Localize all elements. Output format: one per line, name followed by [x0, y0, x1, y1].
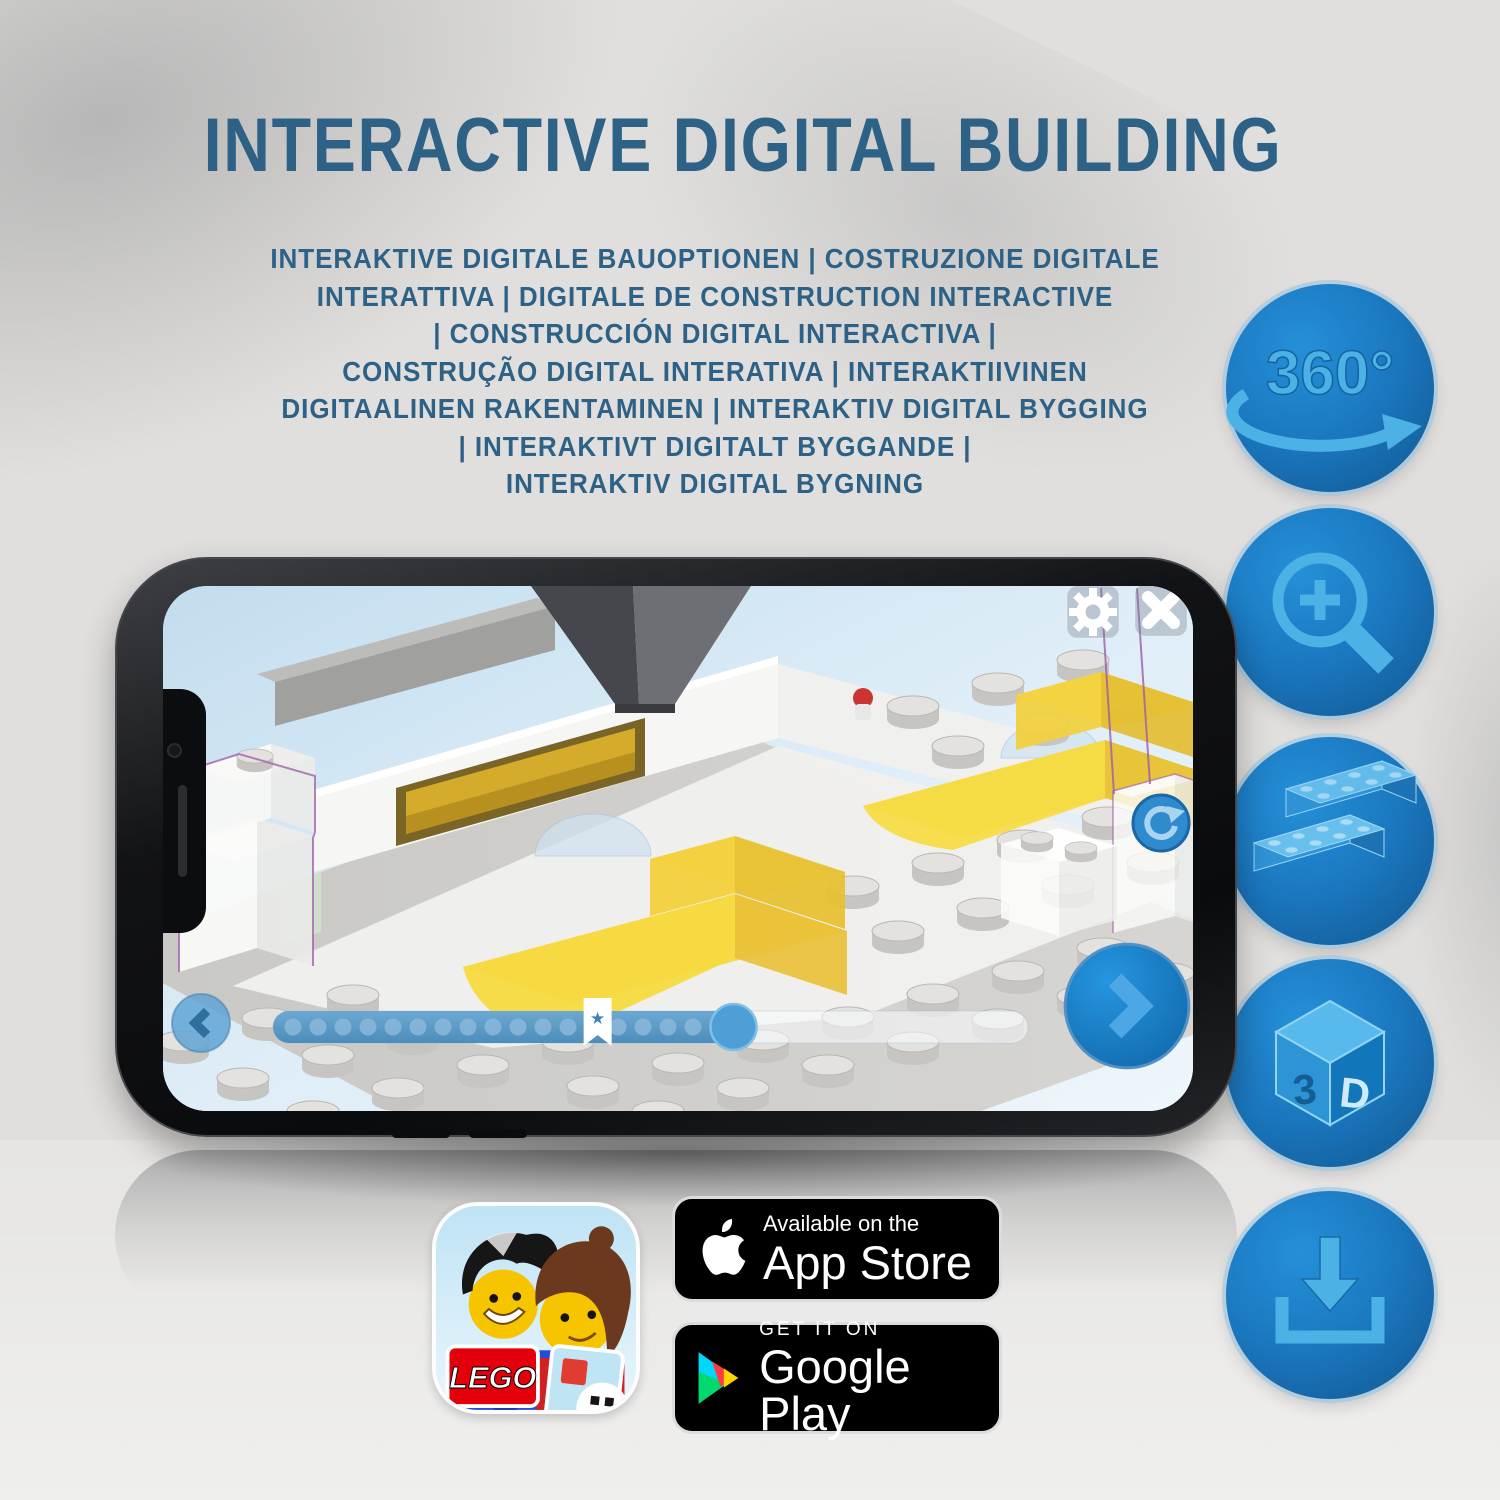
- next-step-button[interactable]: [1065, 944, 1189, 1068]
- progress-handle[interactable]: [711, 1004, 757, 1050]
- multilingual-subtitle: INTERAKTIVE DIGITALE BAUOPTIONEN | COSTR…: [36, 240, 1394, 503]
- cube-3-label: 3: [1291, 1065, 1319, 1114]
- google-play-icon: [695, 1346, 743, 1410]
- feature-zoom: [1226, 508, 1434, 716]
- phone-edge-button: [469, 1129, 527, 1138]
- instruction-card: [544, 1345, 634, 1410]
- page-title: INTERACTIVE DIGITAL BUILDING: [111, 102, 1374, 189]
- app-store-tagline: Available on the: [763, 1213, 972, 1235]
- app-store-name: App Store: [763, 1239, 972, 1286]
- phone-notch: [163, 689, 206, 933]
- phone-screen: ★: [163, 586, 1193, 1111]
- feature-3d-view: 3 D: [1226, 959, 1434, 1167]
- subtitle-line: CONSTRUÇÃO DIGITAL INTERATIVA | INTERAKT…: [36, 353, 1394, 391]
- feature-bricks: [1226, 737, 1434, 945]
- google-play-name: Google Play: [759, 1343, 979, 1437]
- google-play-tagline: GET IT ON: [759, 1320, 979, 1339]
- star-icon: ★: [590, 1009, 605, 1028]
- download-icon: [1226, 1191, 1434, 1399]
- feature-download: [1226, 1191, 1434, 1399]
- subtitle-line: INTERAKTIV DIGITAL BYGNING: [36, 465, 1394, 503]
- settings-button[interactable]: [1067, 586, 1119, 638]
- reset-rotation-button[interactable]: [1133, 795, 1189, 851]
- minifigure-hint: [853, 688, 873, 720]
- camera-icon: [169, 745, 180, 756]
- 360-rotation-icon: 360°: [1226, 284, 1434, 492]
- phone-edge-button: [392, 1129, 450, 1138]
- white-brick-box: [1001, 828, 1117, 936]
- lego-app-artwork: LEGO: [436, 1206, 636, 1410]
- 360-label: 360°: [1266, 339, 1394, 408]
- close-button[interactable]: [1135, 586, 1187, 636]
- lego-logo: LEGO: [448, 1346, 538, 1406]
- 3d-cube-icon: 3 D: [1226, 959, 1434, 1167]
- lego-logo-text: LEGO: [449, 1360, 536, 1395]
- back-button[interactable]: [172, 994, 230, 1052]
- google-play-badge[interactable]: GET IT ON Google Play: [672, 1322, 1002, 1434]
- subtitle-line: | CONSTRUCCIÓN DIGITAL INTERACTIVA |: [36, 315, 1394, 353]
- speaker-slot: [178, 785, 187, 877]
- cube-d-label: D: [1337, 1068, 1372, 1118]
- magnifier-plus-icon: [1226, 508, 1434, 716]
- lego-app-icon[interactable]: LEGO: [432, 1202, 640, 1414]
- lego-builder-app-scene: ★: [163, 586, 1193, 1111]
- subtitle-line: INTERATTIVA | DIGITALE DE CONSTRUCTION I…: [36, 278, 1394, 316]
- subtitle-line: INTERAKTIVE DIGITALE BAUOPTIONEN | COSTR…: [36, 240, 1394, 278]
- apple-icon: [695, 1218, 747, 1280]
- subtitle-line: | INTERAKTIVT DIGITALT BYGGANDE |: [36, 428, 1394, 466]
- feature-360-rotation: 360°: [1226, 284, 1434, 492]
- subtitle-line: DIGITAALINEN RAKENTAMINEN | INTERAKTIV D…: [36, 390, 1394, 428]
- smartphone: ★: [115, 557, 1237, 1137]
- lego-bricks-icon: [1226, 737, 1434, 945]
- app-store-badge[interactable]: Available on the App Store: [672, 1196, 1002, 1302]
